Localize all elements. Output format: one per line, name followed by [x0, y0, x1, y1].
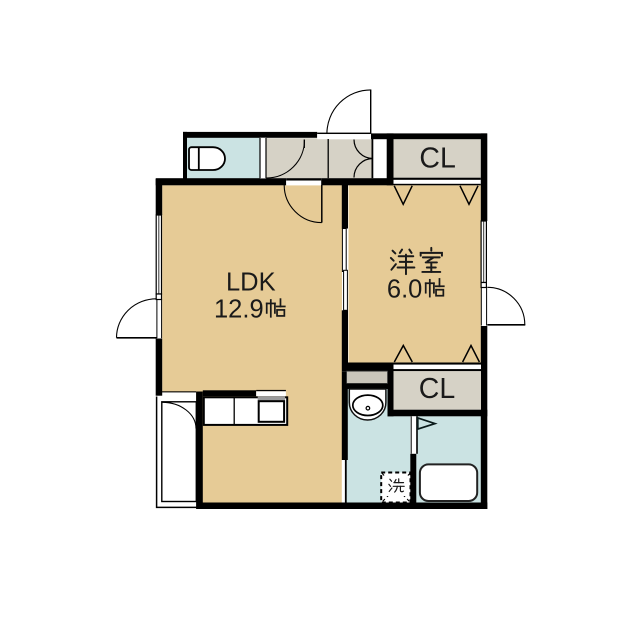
svg-text:CL: CL	[419, 142, 455, 174]
svg-text:12.9: 12.9	[214, 296, 264, 324]
svg-text:LDK: LDK	[226, 268, 276, 296]
svg-text:CL: CL	[419, 373, 455, 405]
svg-text:6.0: 6.0	[387, 276, 422, 304]
